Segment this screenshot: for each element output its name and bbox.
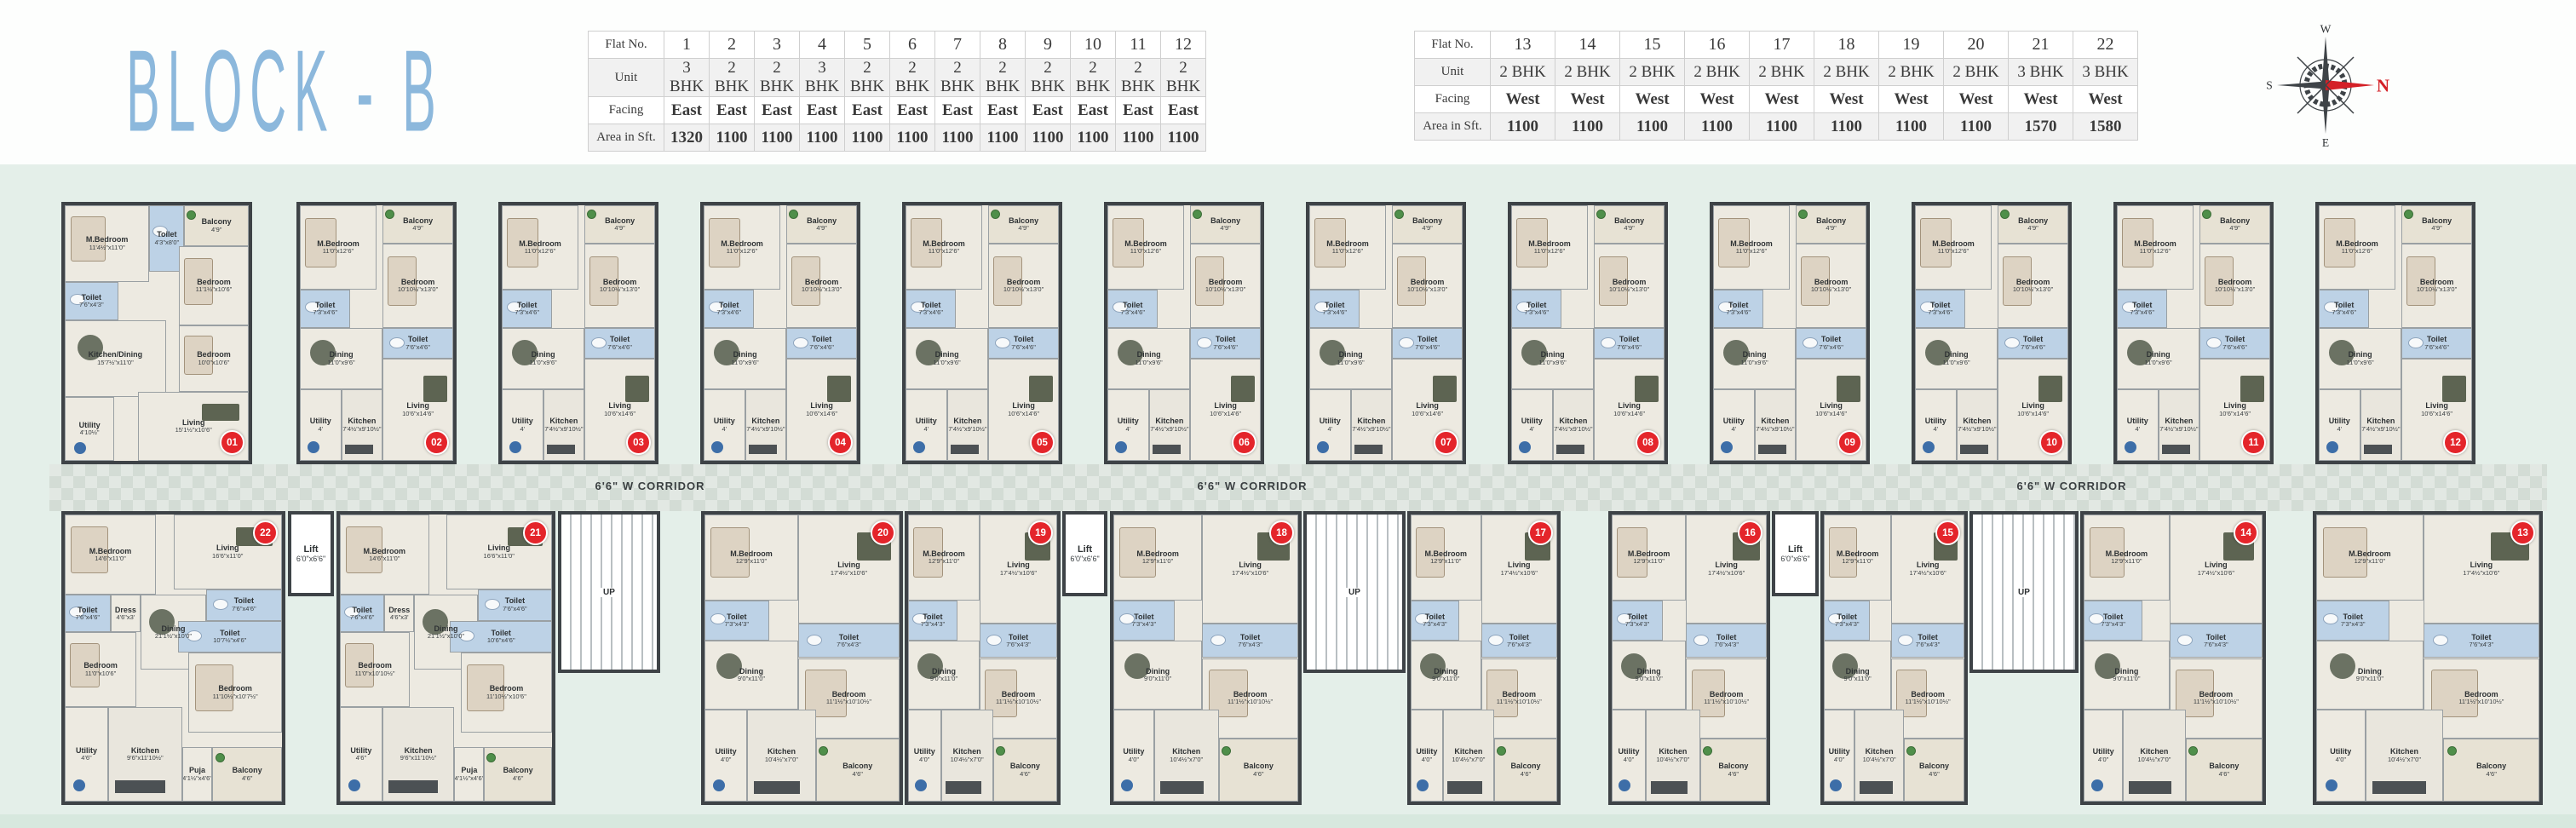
- flat-cell-area: 1100: [1161, 124, 1206, 152]
- room-dims: 4'9": [1220, 225, 1230, 232]
- unit-badge: 02: [424, 430, 449, 455]
- room-dims: 17'4½"x10'6": [1501, 570, 1538, 577]
- room-dims: 4'9": [1826, 225, 1836, 232]
- unit-badge: 04: [828, 430, 853, 455]
- room-dims: 11'10½"x10'7½": [213, 693, 258, 700]
- room-dims: 7'4½"x9'10½": [1554, 426, 1592, 433]
- room-dining: Dining11'0"x9'6": [1713, 328, 1796, 389]
- room-toilet: Toilet7'6"x4'6": [1594, 328, 1665, 359]
- room-utility: Utility4': [704, 389, 745, 461]
- unit-badge: 06: [1232, 430, 1256, 455]
- unit-badge: 18: [1269, 520, 1294, 545]
- room-dims: 4'6": [81, 755, 91, 762]
- flat-cell-unit: 2 BHK: [1116, 59, 1161, 97]
- room-dims: 7'3"x4'3": [724, 621, 749, 628]
- room-toilet: Toilet7'3"x4'3": [2316, 601, 2389, 641]
- flat-cell-no: 3: [755, 32, 800, 59]
- flat-cell-facing: East: [664, 97, 710, 124]
- room-dims: 10'10½"x13'0": [2417, 286, 2457, 293]
- flat-cell-facing: West: [1555, 86, 1620, 113]
- room-dims: 7'4½"x9'10½": [342, 426, 381, 433]
- room-dims: 11'0"x12'6": [1736, 248, 1767, 255]
- room-dims: 11'0"x10'6": [85, 670, 116, 677]
- room-m-bedroom: M.Bedroom11'0"x12'6": [300, 205, 377, 290]
- room-bedroom: Bedroom10'10½"x13'0": [1392, 244, 1463, 328]
- room-dress: Dress4'6"x3': [111, 595, 141, 632]
- room-utility: Utility4': [906, 389, 947, 461]
- room-dining: Dining11'0"x9'6": [502, 328, 584, 389]
- table-row: FacingEastEastEastEastEastEastEastEastEa…: [589, 97, 1206, 124]
- room-dims: 11'0"x9'6": [731, 359, 758, 366]
- room-dims: 7'6"x4'3": [2470, 641, 2494, 648]
- room-m-bedroom: M.Bedroom12'9"x11'0": [1411, 515, 1481, 601]
- unit-card-22: M.Bedroom14'6"x11'0"Living16'6"x11'0"Toi…: [61, 511, 285, 805]
- stairs-block: UP: [1303, 511, 1406, 673]
- room-dims: 12'9"x11'0": [1842, 558, 1872, 565]
- room-dims: 7'3"x4'3": [921, 621, 946, 628]
- flat-cell-no: 7: [935, 32, 980, 59]
- room-dims: 7'3"x4'6": [716, 309, 741, 316]
- flat-cell-unit: 3 BHK: [2009, 59, 2073, 86]
- flat-cell-facing: West: [1750, 86, 1814, 113]
- lift-block: Lift6'0"x6'6": [1772, 511, 1819, 596]
- room-dims: 4'9": [1422, 225, 1432, 232]
- room-dims: 10'6"x14'6": [1613, 411, 1645, 417]
- room-dims: 12'9"x11'0": [929, 558, 959, 565]
- unit-card-09: M.Bedroom11'0"x12'6"Balcony4'9"Bedroom10…: [1710, 202, 1870, 464]
- room-dims: 7'6"x4'6": [350, 614, 375, 621]
- unit-card-06: M.Bedroom11'0"x12'6"Balcony4'9"Bedroom10…: [1104, 202, 1264, 464]
- room-balcony: Balcony4'6": [2186, 739, 2263, 802]
- flat-cell-facing: East: [1026, 97, 1071, 124]
- flat-cell-facing: East: [800, 97, 845, 124]
- row-label: Area in Sft.: [1415, 113, 1491, 141]
- room-dims: 11'0"x10'10½": [355, 670, 395, 677]
- room-dims: 11'0"x9'6": [1942, 359, 1969, 366]
- room-utility: Utility4'0": [2316, 710, 2366, 802]
- unit-card-20: M.Bedroom12'9"x11'0"Living17'4½"x10'6"To…: [701, 511, 903, 805]
- flat-cell-area: 1100: [1879, 113, 1944, 141]
- flat-cell-unit: 2 BHK: [1750, 59, 1814, 86]
- flat-cell-facing: East: [755, 97, 800, 124]
- room-dims: 7'3"x4'6": [2332, 309, 2356, 316]
- room-dims: 10'6"x14'6": [402, 411, 434, 417]
- room-dims: 7'6"x4'6": [2222, 344, 2247, 351]
- room-dims: 10'10½"x13'0": [1407, 286, 1447, 293]
- room-dims: 10'4½"x7'0": [1170, 756, 1203, 763]
- room-dims: 4'0": [1129, 756, 1139, 763]
- room-dims: 11'0"x12'6": [1938, 248, 1969, 255]
- room-dims: 4'0": [1422, 756, 1432, 763]
- room-m-bedroom: M.Bedroom12'9"x11'0": [2316, 515, 2424, 601]
- flat-cell-facing: West: [1944, 86, 2009, 113]
- room-dims: 10'4½"x7'0": [2137, 756, 2171, 763]
- room-toilet: Toilet7'6"x4'3": [980, 624, 1057, 658]
- room-utility: Utility4'0": [1824, 710, 1854, 802]
- flat-table-east: Flat No.123456789101112Unit3 BHK2 BHK2 B…: [588, 31, 1206, 152]
- unit-badge: 05: [1030, 430, 1055, 455]
- room-m-bedroom: M.Bedroom11'0"x12'6": [704, 205, 780, 290]
- room-dims: 11'0"x12'6": [1130, 248, 1161, 255]
- flat-cell-no: 5: [845, 32, 890, 59]
- flat-cell-facing: West: [2009, 86, 2073, 113]
- room-dims: 9'0"x11'0": [2113, 676, 2140, 682]
- room-dims: 7'6"x4'6": [2021, 344, 2045, 351]
- room-dims: 7'4½"x9'10½": [544, 426, 583, 433]
- room-balcony: Balcony4'9": [988, 205, 1059, 244]
- room-toilet: Toilet7'6"x4'6": [478, 589, 552, 621]
- room-toilet: Toilet7'6"x4'6": [988, 328, 1059, 359]
- room-dims: 7'3"x4'6": [1726, 309, 1751, 316]
- room-dims: 17'4½"x10'6": [1909, 570, 1946, 577]
- room-toilet: Toilet10'6"x4'6": [450, 621, 552, 653]
- room-utility: Utility4': [1511, 389, 1553, 461]
- room-dims: 4'1½"x4'6": [454, 775, 484, 782]
- room-dims: 7'6"x4'6": [1415, 344, 1440, 351]
- room-dims: 10'10½"x13'0": [398, 286, 438, 293]
- room-dims: 7'3"x4'6": [1524, 309, 1549, 316]
- flat-cell-unit: 2 BHK: [1491, 59, 1555, 86]
- room-utility: Utility4'6": [340, 707, 382, 802]
- room-dims: 10'10½"x13'0": [802, 286, 842, 293]
- room-kitchen: Kitchen7'4½"x9'10½": [342, 389, 383, 461]
- room-dims: 9'6"x11'10½": [127, 755, 164, 762]
- room-dims: 7'6"x4'6": [2424, 344, 2449, 351]
- room-dims: 7'4½"x9'10½": [2361, 426, 2400, 433]
- room-dims: 10'4½"x7'0": [1863, 756, 1896, 763]
- flat-cell-unit: 2 BHK: [1071, 59, 1116, 97]
- unit-card-18: M.Bedroom12'9"x11'0"Living17'4½"x10'6"To…: [1110, 511, 1302, 805]
- room-toilet: Toilet7'3"x4'3": [2084, 601, 2142, 641]
- room-dims: 4'6"x3': [390, 614, 409, 621]
- table-row: Unit3 BHK2 BHK2 BHK3 BHK2 BHK2 BHK2 BHK2…: [589, 59, 1206, 97]
- unit-card-02: M.Bedroom11'0"x12'6"Balcony4'9"Bedroom10…: [296, 202, 457, 464]
- room-m-bedroom: M.Bedroom12'9"x11'0": [1612, 515, 1686, 601]
- room-balcony: Balcony4'9": [1998, 205, 2068, 244]
- room-dims: 10'10½"x13'0": [1811, 286, 1851, 293]
- room-balcony: Balcony4'9": [1392, 205, 1463, 244]
- room-dims: 4'9": [2027, 225, 2038, 232]
- unit-card-16: M.Bedroom12'9"x11'0"Living17'4½"x10'6"To…: [1608, 511, 1770, 805]
- room-dims: 11'0"x9'6": [2144, 359, 2171, 366]
- room-toilet: Toilet7'6"x4'3": [798, 624, 900, 658]
- room-m-bedroom: M.Bedroom12'9"x11'0": [908, 515, 980, 601]
- room-dims: 7'3"x4'6": [313, 309, 337, 316]
- row-label: Facing: [1415, 86, 1491, 113]
- room-toilet: Toilet7'6"x4'3": [1481, 624, 1557, 658]
- room-dims: 4'0": [2098, 756, 2108, 763]
- unit-card-19: M.Bedroom12'9"x11'0"Living17'4½"x10'6"To…: [905, 511, 1061, 805]
- room-balcony: Balcony4'9": [2199, 205, 2270, 244]
- room-dining: Dining11'0"x9'6": [1107, 328, 1190, 389]
- room-dims: 4': [1529, 426, 1534, 433]
- flat-cell-facing: West: [1685, 86, 1750, 113]
- room-dims: 4': [722, 426, 727, 433]
- room-dims: 12'9"x11'0": [2355, 558, 2385, 565]
- room-dims: 10'4½"x7'0": [1452, 756, 1485, 763]
- room-m-bedroom: M.Bedroom11'0"x12'6": [2319, 205, 2395, 290]
- room-m-bedroom: M.Bedroom12'9"x11'0": [1113, 515, 1202, 601]
- flat-cell-unit: 2 BHK: [1879, 59, 1944, 86]
- room-dims: 4'3"x8'0": [155, 239, 180, 246]
- room-dims: 7'6"x4'6": [809, 344, 834, 351]
- room-toilet: Toilet7'3"x4'3": [704, 601, 769, 641]
- room-dims: 4': [520, 426, 525, 433]
- room-dims: 11'0"x9'6": [1538, 359, 1566, 366]
- room-toilet: Toilet7'6"x4'3": [65, 282, 118, 320]
- flat-cell-area: 1100: [1555, 113, 1620, 141]
- room-toilet: Toilet7'3"x4'6": [502, 290, 552, 328]
- room-kitchen: Kitchen10'4½"x7'0": [1854, 710, 1904, 802]
- room-balcony: Balcony4'6": [993, 739, 1057, 802]
- room-dims: 4'10½": [80, 429, 100, 436]
- room-kitchen: Kitchen7'4½"x9'10½": [1957, 389, 1998, 461]
- flat-cell-area: 1100: [845, 124, 890, 152]
- room-m-bedroom: M.Bedroom11'0"x12'6": [1713, 205, 1790, 290]
- room-toilet: Toilet7'3"x4'6": [2117, 290, 2167, 328]
- flat-cell-facing: West: [1879, 86, 1944, 113]
- room-toilet: Toilet7'6"x4'6": [1796, 328, 1866, 359]
- row-label: Facing: [589, 97, 664, 124]
- row-label: Unit: [1415, 59, 1491, 86]
- flat-cell-no: 8: [980, 32, 1026, 59]
- room-dims: 7'4½"x9'10½": [1958, 426, 1996, 433]
- room-dims: 7'6"x4'6": [232, 606, 256, 612]
- room-dims: 10'6"x14'6": [2017, 411, 2049, 417]
- room-dims: 10'10½"x13'0": [1609, 286, 1649, 293]
- room-dims: 10'10½"x13'0": [2013, 286, 2053, 293]
- room-dims: 15'7½"x11'0": [97, 359, 134, 366]
- room-m-bedroom: M.Bedroom14'6"x11'0": [340, 515, 429, 595]
- room-dims: 11'1½"x10'10½": [1497, 699, 1542, 705]
- room-dims: 21'1½"x10'0": [428, 633, 464, 640]
- unit-card-21: M.Bedroom14'6"x11'0"Living16'6"x11'0"Toi…: [336, 511, 555, 805]
- room-bedroom: Bedroom10'10½"x13'0": [1594, 244, 1665, 328]
- room-m-bedroom: M.Bedroom12'9"x11'0": [704, 515, 798, 601]
- flat-cell-facing: East: [935, 97, 980, 124]
- room-utility: Utility4'0": [1612, 710, 1646, 802]
- flat-cell-area: 1580: [2073, 113, 2138, 141]
- room-puja: Puja4'1½"x4'6": [182, 747, 213, 802]
- room-bedroom: Bedroom11'10½"x10'6": [461, 653, 552, 733]
- room-dims: 4'6": [2219, 771, 2229, 778]
- unit-badge: 21: [523, 520, 548, 545]
- room-dims: 11'1½"x10'10½": [1906, 699, 1951, 705]
- room-dims: 11'4½"x11'0": [89, 244, 125, 251]
- room-bedroom: Bedroom10'10½"x13'0": [1998, 244, 2068, 328]
- row-label: Area in Sft.: [589, 124, 664, 152]
- room-dims: 11'1½"x10'10½": [2194, 699, 2239, 705]
- room-dims: 11'0"x9'6": [2346, 359, 2373, 366]
- flat-cell-area: 1100: [1071, 124, 1116, 152]
- flat-cell-area: 1100: [1750, 113, 1814, 141]
- room-bedroom: Bedroom10'10½"x13'0": [2401, 244, 2472, 328]
- compass-north-label: N: [2377, 76, 2389, 96]
- room-dims: 11'1½"x10'10½": [996, 699, 1041, 705]
- table-row: Area in Sft.1100110011001100110011001100…: [1415, 113, 2138, 141]
- unit-badge: 07: [1434, 430, 1458, 455]
- room-dims: 11'0"x12'6": [2342, 248, 2372, 255]
- room-dims: 16'6"x11'0": [484, 553, 515, 560]
- room-dims: 10'6"x14'6": [604, 411, 635, 417]
- room-utility: Utility4': [2117, 389, 2159, 461]
- room-toilet: Toilet7'6"x4'3": [2170, 624, 2263, 658]
- room-dims: 4': [923, 426, 929, 433]
- table-row: Area in Sft.1320110011001100110011001100…: [589, 124, 1206, 152]
- room-dims: 11'10½"x10'6": [486, 693, 526, 700]
- room-dims: 10'0"x10'6": [198, 359, 229, 366]
- room-dims: 4'9": [211, 227, 221, 233]
- room-dims: 10'6"x14'6": [806, 411, 837, 417]
- flat-cell-unit: 2 BHK: [1814, 59, 1879, 86]
- room-m-bedroom: M.Bedroom11'0"x12'6": [1309, 205, 1386, 290]
- room-dims: 9'0"x11'0": [1432, 676, 1459, 682]
- room-utility: Utility4'10½": [65, 397, 114, 461]
- flat-cell-no: 18: [1814, 32, 1879, 59]
- flat-cell-facing: East: [1116, 97, 1161, 124]
- room-balcony: Balcony4'6": [1904, 739, 1964, 802]
- row-label: Flat No.: [589, 32, 664, 59]
- room-toilet: Toilet7'3"x4'6": [1107, 290, 1158, 328]
- corridor-label: 6'6" W CORRIDOR: [595, 480, 705, 492]
- room-dims: 4'0": [1834, 756, 1844, 763]
- flat-cell-no: 20: [1944, 32, 2009, 59]
- room-dims: 4': [1933, 426, 1938, 433]
- room-balcony: Balcony4'9": [584, 205, 655, 244]
- room-m-bedroom: M.Bedroom11'4½"x11'0": [65, 205, 149, 282]
- flat-table-west: Flat No.13141516171819202122Unit2 BHK2 B…: [1414, 31, 2138, 141]
- room-dims: 7'4½"x9'10½": [948, 426, 986, 433]
- room-dims: 9'6"x11'10½": [400, 755, 437, 762]
- room-dims: 10'6"x14'6": [1008, 411, 1039, 417]
- room-dims: 17'4½"x10'6": [1708, 570, 1745, 577]
- room-dims: 17'4½"x10'6": [2198, 570, 2234, 577]
- header: BLOCK - B Flat No.123456789101112Unit3 B…: [0, 0, 2576, 164]
- room-toilet: Toilet7'3"x4'3": [1612, 601, 1663, 641]
- room-dining: Dining11'0"x9'6": [906, 328, 988, 389]
- footer-strip: [0, 814, 2576, 828]
- room-dims: 10'6"x14'6": [1815, 411, 1847, 417]
- room-dims: 11'0"x12'6": [929, 248, 959, 255]
- room-dims: 12'9"x11'0": [1430, 558, 1461, 565]
- room-dims: 7'6"x4'6": [503, 606, 527, 612]
- room-kitchen: Kitchen10'4½"x7'0": [1646, 710, 1700, 802]
- room-dims: 4'0": [721, 756, 731, 763]
- room-dining: Dining11'0"x9'6": [300, 328, 382, 389]
- room-utility: Utility4': [1107, 389, 1149, 461]
- room-bedroom: Bedroom10'10½"x13'0": [1796, 244, 1866, 328]
- unit-card-01: M.Bedroom11'4½"x11'0"Toilet4'3"x8'0"Balc…: [61, 202, 252, 464]
- flat-cell-no: 2: [710, 32, 755, 59]
- flat-cell-no: 4: [800, 32, 845, 59]
- room-kitchen: Kitchen7'4½"x9'10½": [1149, 389, 1191, 461]
- room-dims: 9'0"x11'0": [930, 676, 957, 682]
- room-dims: 11'0"x12'6": [2140, 248, 2171, 255]
- room-toilet: Toilet7'6"x4'6": [1392, 328, 1463, 359]
- room-kitchen: Kitchen7'4½"x9'10½": [1755, 389, 1797, 461]
- room-dims: 7'6"x4'6": [75, 614, 100, 621]
- room-dims: 10'10½"x13'0": [1003, 286, 1044, 293]
- room-dims: 7'4½"x9'10½": [746, 426, 785, 433]
- flat-cell-no: 17: [1750, 32, 1814, 59]
- room-dining: Dining9'0"x11'0": [2084, 641, 2170, 710]
- room-balcony: Balcony4'6": [1700, 739, 1767, 802]
- room-dims: 11'0"x9'6": [1135, 359, 1162, 366]
- room-kitchen: Kitchen7'4½"x9'10½": [1553, 389, 1595, 461]
- stairs-up-label: UP: [1346, 588, 1363, 597]
- room-dress: Dress4'6"x3': [384, 595, 414, 632]
- room-toilet: Toilet7'6"x4'6": [382, 328, 453, 359]
- table-row: Unit2 BHK2 BHK2 BHK2 BHK2 BHK2 BHK2 BHK2…: [1415, 59, 2138, 86]
- stairs-block: UP: [1969, 511, 2079, 673]
- room-dims: 4'6"x3': [116, 614, 135, 621]
- room-dims: 4'6": [1929, 771, 1939, 778]
- room-dims: 15'1½"x10'6": [175, 427, 212, 434]
- room-dims: 7'6"x4'6": [1819, 344, 1843, 351]
- room-balcony: Balcony4'6": [484, 747, 552, 802]
- flat-cell-no: 1: [664, 32, 710, 59]
- flat-cell-facing: East: [1071, 97, 1116, 124]
- room-dims: 7'6"x4'3": [1916, 641, 1941, 648]
- stairs-up-label: UP: [2015, 588, 2033, 597]
- unit-badge: 17: [1528, 520, 1553, 545]
- room-dims: 4'6": [2486, 771, 2496, 778]
- room-utility: Utility4': [1915, 389, 1957, 461]
- room-dining: Dining9'0"x11'0": [1411, 641, 1481, 710]
- table-row: Flat No.13141516171819202122: [1415, 32, 2138, 59]
- room-dims: 11'1½"x10'6": [196, 286, 233, 293]
- room-dims: 10'6"x14'6": [2421, 411, 2452, 417]
- room-dims: 12'9"x11'0": [2111, 558, 2142, 565]
- room-dims: 11'0"x12'6": [727, 248, 757, 255]
- flat-cell-unit: 2 BHK: [1026, 59, 1071, 97]
- lift-block: Lift6'0"x6'6": [1062, 511, 1107, 596]
- lift-label: Lift: [1788, 544, 1803, 555]
- room-toilet: Toilet7'3"x4'6": [1309, 290, 1360, 328]
- room-dims: 7'6"x4'3": [1714, 641, 1739, 648]
- room-dining: Dining9'0"x11'0": [908, 641, 980, 710]
- flat-cell-facing: West: [2073, 86, 2138, 113]
- room-balcony: Balcony4'6": [816, 739, 900, 802]
- room-dims: 7'6"x4'6": [607, 344, 632, 351]
- room-dims: 17'4½"x10'6": [1000, 570, 1037, 577]
- flat-cell-unit: 2 BHK: [935, 59, 980, 97]
- room-dims: 9'0"x11'0": [1843, 676, 1871, 682]
- room-balcony: Balcony4'9": [1190, 205, 1261, 244]
- unit-card-13: M.Bedroom12'9"x11'0"Living17'4½"x10'6"To…: [2313, 511, 2543, 805]
- room-dining: Dining11'0"x9'6": [1309, 328, 1392, 389]
- room-dims: 7'3"x4'6": [2130, 309, 2154, 316]
- room-toilet: Toilet7'3"x4'6": [1511, 290, 1561, 328]
- compass-south-label: S: [2266, 79, 2273, 92]
- room-utility: Utility4': [1309, 389, 1351, 461]
- room-bedroom: Bedroom11'1½"x10'6": [179, 246, 249, 325]
- flat-cell-no: 9: [1026, 32, 1071, 59]
- flat-cell-area: 1100: [890, 124, 935, 152]
- room-toilet: Toilet7'6"x4'6": [584, 328, 655, 359]
- room-dining: Dining9'0"x11'0": [1824, 641, 1891, 710]
- table-row: FacingWestWestWestWestWestWestWestWestWe…: [1415, 86, 2138, 113]
- room-bedroom: Bedroom10'10½"x13'0": [988, 244, 1059, 328]
- room-dims: 9'0"x11'0": [2356, 676, 2383, 682]
- room-bedroom: Bedroom10'10½"x13'0": [786, 244, 857, 328]
- room-toilet: Toilet7'6"x4'6": [2199, 328, 2270, 359]
- room-balcony: Balcony4'9": [184, 205, 249, 246]
- room-dims: 7'4½"x9'10½": [1756, 426, 1794, 433]
- room-dims: 10'4½"x7'0": [765, 756, 798, 763]
- room-dims: 9'0"x11'0": [738, 676, 765, 682]
- room-dims: 11'0"x9'6": [1740, 359, 1768, 366]
